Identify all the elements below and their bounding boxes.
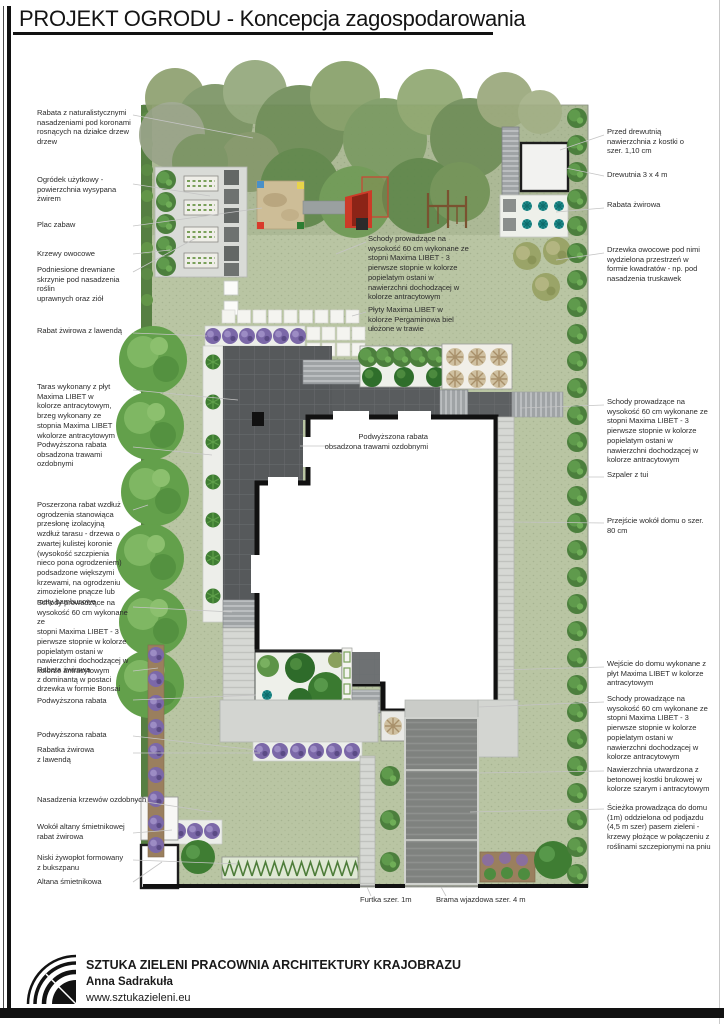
ornamental-beds-top (358, 344, 512, 389)
annotation-right-stairs-1: Schody prowadzące na wysokość 60 cm wyko… (607, 397, 715, 465)
footer-website: www.sztukazieleni.eu (86, 992, 191, 1004)
annotation-right-gravel-bed: Rabata żwirowa (607, 200, 715, 210)
footer-author-name: Anna Sadrakuła (86, 976, 173, 988)
annotation-left-terrace: Taras wykonany z płyt Maxima LIBET w kol… (37, 382, 135, 440)
footer-company-name: SZTUKA ZIELENI PRACOWNIA ARCHITEKTURY KR… (86, 958, 461, 972)
annotation-right-paved-surface: Nawierzchnia utwardzona z betonowej kost… (607, 765, 715, 794)
annotation-left-raised-boxes: Podniesione drewniane skrzynie pod nasad… (37, 265, 135, 304)
driveway (405, 718, 478, 884)
slide-structure (345, 190, 372, 230)
annotation-right-stairs-2: Schody prowadzące na wysokość 60 cm wyko… (607, 694, 715, 762)
path-to-gate (360, 756, 375, 886)
terrace-steps-right (440, 390, 468, 417)
fruit-tree (513, 242, 541, 270)
annotation-right-shed-paving: Przed drewutnią nawierzchnia z kostki o … (607, 127, 715, 156)
terrace-steps-top (303, 360, 360, 384)
playground-path (303, 201, 345, 214)
terrace-steps-bottom (223, 600, 257, 628)
annotation-right-thuja-row: Szpaler z tui (607, 470, 715, 480)
annotation-right-wood-shed: Drewutnia 3 x 4 m (607, 170, 715, 180)
annotation-right-house-walkway: Przejście wokół domu o szer. 80 cm (607, 516, 715, 535)
annotation-left-gravel-lavender: Rabat żwirowa z lawendą (37, 326, 135, 336)
shed-paver-path (502, 127, 519, 197)
annotation-left-lavender-bed: Rabatka żwirowa z lawendą (37, 745, 135, 764)
playground-corner-blue (257, 181, 264, 188)
annotation-right-fruit-trees: Drzewka owocowe pod nimi wydzielona prze… (607, 245, 715, 284)
wood-shed (521, 143, 568, 191)
playground-corner-yellow (297, 182, 304, 189)
annotation-gate-furtka: Furtka szer. 1m (360, 895, 430, 905)
annotation-left-playground: Plac zabaw (37, 220, 135, 230)
playground-corner-red (257, 222, 264, 229)
annotation-left-raised-bed-grasses: Podwyższona rabata obsadzona trawami ozd… (37, 440, 135, 469)
lavender-bed-top (205, 326, 306, 346)
green-strip-tree (380, 766, 400, 786)
footer-bottom-bar (0, 1008, 724, 1018)
annotation-left-raised-bed-1: Podwyższona rabata (37, 696, 135, 706)
left-purple-bed (148, 645, 164, 857)
ornamental-tree (181, 840, 215, 874)
annotation-left-trash-shelter-bed: Wokół altany śmietnikowej rabat żwirowa (37, 822, 135, 841)
annotation-left-naturalistic-bed: Rabata z naturalistycznymi nasadzeniami … (37, 108, 135, 147)
annotation-left-ornamental-shrubs: Nasadzenia krzewów ozdobnych (37, 795, 165, 805)
hedge-right (567, 105, 588, 887)
annotation-right-house-entry: Wejście do domu wykonane z płyt Maxima L… (607, 659, 715, 688)
annotation-left-fruit-shrubs: Krzewy owocowe (37, 249, 135, 259)
grass-tuft-strip (203, 346, 223, 622)
annotation-center-stairs: Schody prowadzące na wysokość 60 cm wyko… (368, 234, 470, 302)
playground-corner-green (297, 222, 304, 229)
annotation-center-plates: Płyty Maxima LIBET w kolorze Pergaminowa… (368, 305, 470, 334)
annotation-gate-brama: Brama wjazdowa szer. 4 m (436, 895, 564, 905)
company-logo (26, 954, 78, 1006)
annotation-left-boxwood-hedge: Niski żywopłot formowany z bukszpanu (37, 853, 135, 872)
walkway-around-house (498, 417, 514, 713)
annotation-left-widened-bed: Poszerzona rabat wzdłuż ogrodzenia stano… (37, 500, 135, 607)
annotation-center-raised-bed: Podwyższona rabata obsadzona trawami ozd… (300, 432, 428, 451)
annotation-left-bonsai-bed: Rabata żwirowa z dominantą w postaci drz… (37, 665, 135, 694)
annotation-left-utility-garden: Ogródek użytkowy - powierzchnia wysypana… (37, 175, 135, 204)
annotation-right-path-to-house: Ścieżka prowadząca do domu (1m) oddzielo… (607, 803, 715, 852)
page: PROJEKT OGRODU - Koncepcja zagospodarowa… (0, 0, 724, 1024)
annotation-left-trash-shelter: Altana śmietnikowa (37, 877, 135, 887)
entry-apron (478, 700, 518, 757)
annotation-left-raised-bed-2: Podwyższona rabata (37, 730, 135, 740)
